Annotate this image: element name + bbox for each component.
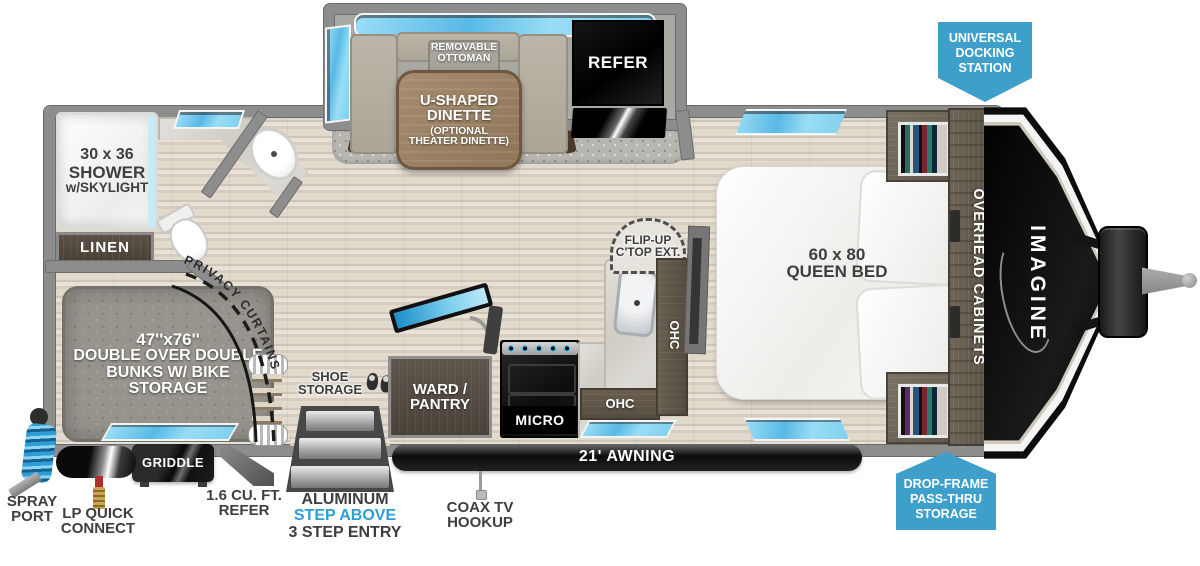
stove-grate	[508, 364, 576, 394]
shower-label-line: w/SKYLIGHT	[66, 181, 149, 195]
shoes-icon-highlight	[369, 375, 375, 381]
stove-knobs	[506, 344, 574, 353]
ohc-lower-cabinet: OHC	[580, 388, 660, 420]
shoe-storage-label: SHOE STORAGE	[292, 370, 368, 397]
bedroom-window-top	[735, 109, 847, 135]
privacy-curtain-arc: PRIVACY CURTAINS	[100, 248, 310, 463]
kitchen-sink-drain	[634, 300, 640, 306]
dinette-label-line: DINETTE	[427, 108, 491, 123]
docking-station-badge: UNIVERSAL DOCKING STATION	[938, 22, 1032, 102]
shower: 30 x 36 SHOWER w/SKYLIGHT	[56, 112, 158, 230]
coax-cable	[479, 471, 482, 492]
ward-pantry: WARD / PANTRY	[388, 356, 492, 438]
overhead-cabinets-label: OVERHEAD CABINETS	[964, 147, 986, 407]
queen-bed-label: 60 x 80 QUEEN BED	[742, 246, 932, 281]
imagine-logo: IMAGINE	[1025, 199, 1049, 369]
ohc-side-label: OHC	[662, 293, 682, 377]
step-3	[291, 466, 389, 488]
mini-refer-label: 1.6 CU. FT. REFER	[196, 488, 292, 519]
dinette-table: U-SHAPED DINETTE (OPTIONAL THEATER DINET…	[396, 70, 522, 170]
dinette-bench-left	[350, 34, 398, 154]
floorplan-canvas: REMOVABLE OTTOMAN U-SHAPED DINETTE (OPTI…	[0, 0, 1200, 566]
entry-steps-label: ALUMINUM STEP ABOVE 3 STEP ENTRY	[270, 492, 420, 541]
kitchen-window	[579, 420, 677, 438]
refrigerator: REFER	[572, 20, 664, 106]
slide-side-window	[325, 24, 351, 123]
griddle: GRIDDLE	[132, 444, 214, 482]
bath-window	[173, 110, 245, 129]
spray-port-label: SPRAY PORT	[0, 494, 64, 525]
step-1	[306, 411, 374, 431]
dinette-label-line: U-SHAPED	[420, 93, 498, 108]
entry-steps	[286, 406, 394, 492]
step-2	[299, 438, 381, 459]
propane-cover	[1098, 226, 1148, 338]
privacy-curtains-label: PRIVACY CURTAINS	[182, 253, 283, 372]
hitch-ball-end	[1182, 273, 1197, 288]
griddle-feet	[140, 482, 149, 487]
dinette-bench-right	[518, 34, 568, 154]
shower-label-line: SHOWER	[69, 164, 146, 181]
wardrobe-top-clothes	[898, 122, 950, 176]
refrigerator-front	[571, 108, 667, 138]
bath-sink-drain	[271, 151, 277, 157]
pass-thru-storage-badge: DROP-FRAME PASS-THRU STORAGE	[896, 452, 996, 530]
cabinet-handle-bottom	[950, 306, 960, 338]
dinette-label-line: THEATER DINETTE)	[409, 136, 509, 147]
wardrobe-bottom-clothes	[898, 384, 950, 438]
shower-label-line: 30 x 36	[80, 147, 133, 163]
svg-text:PRIVACY CURTAINS: PRIVACY CURTAINS	[182, 253, 283, 372]
coax-label: COAX TV HOOKUP	[424, 500, 536, 531]
bedroom-window-bottom	[744, 418, 850, 441]
lp-bumper-tank	[56, 446, 136, 478]
cabinet-handle-top	[950, 210, 960, 242]
microwave: MICRO	[503, 406, 577, 434]
awning-bar: 21' AWNING	[392, 444, 862, 471]
ottoman-label: REMOVABLE OTTOMAN	[416, 42, 512, 63]
